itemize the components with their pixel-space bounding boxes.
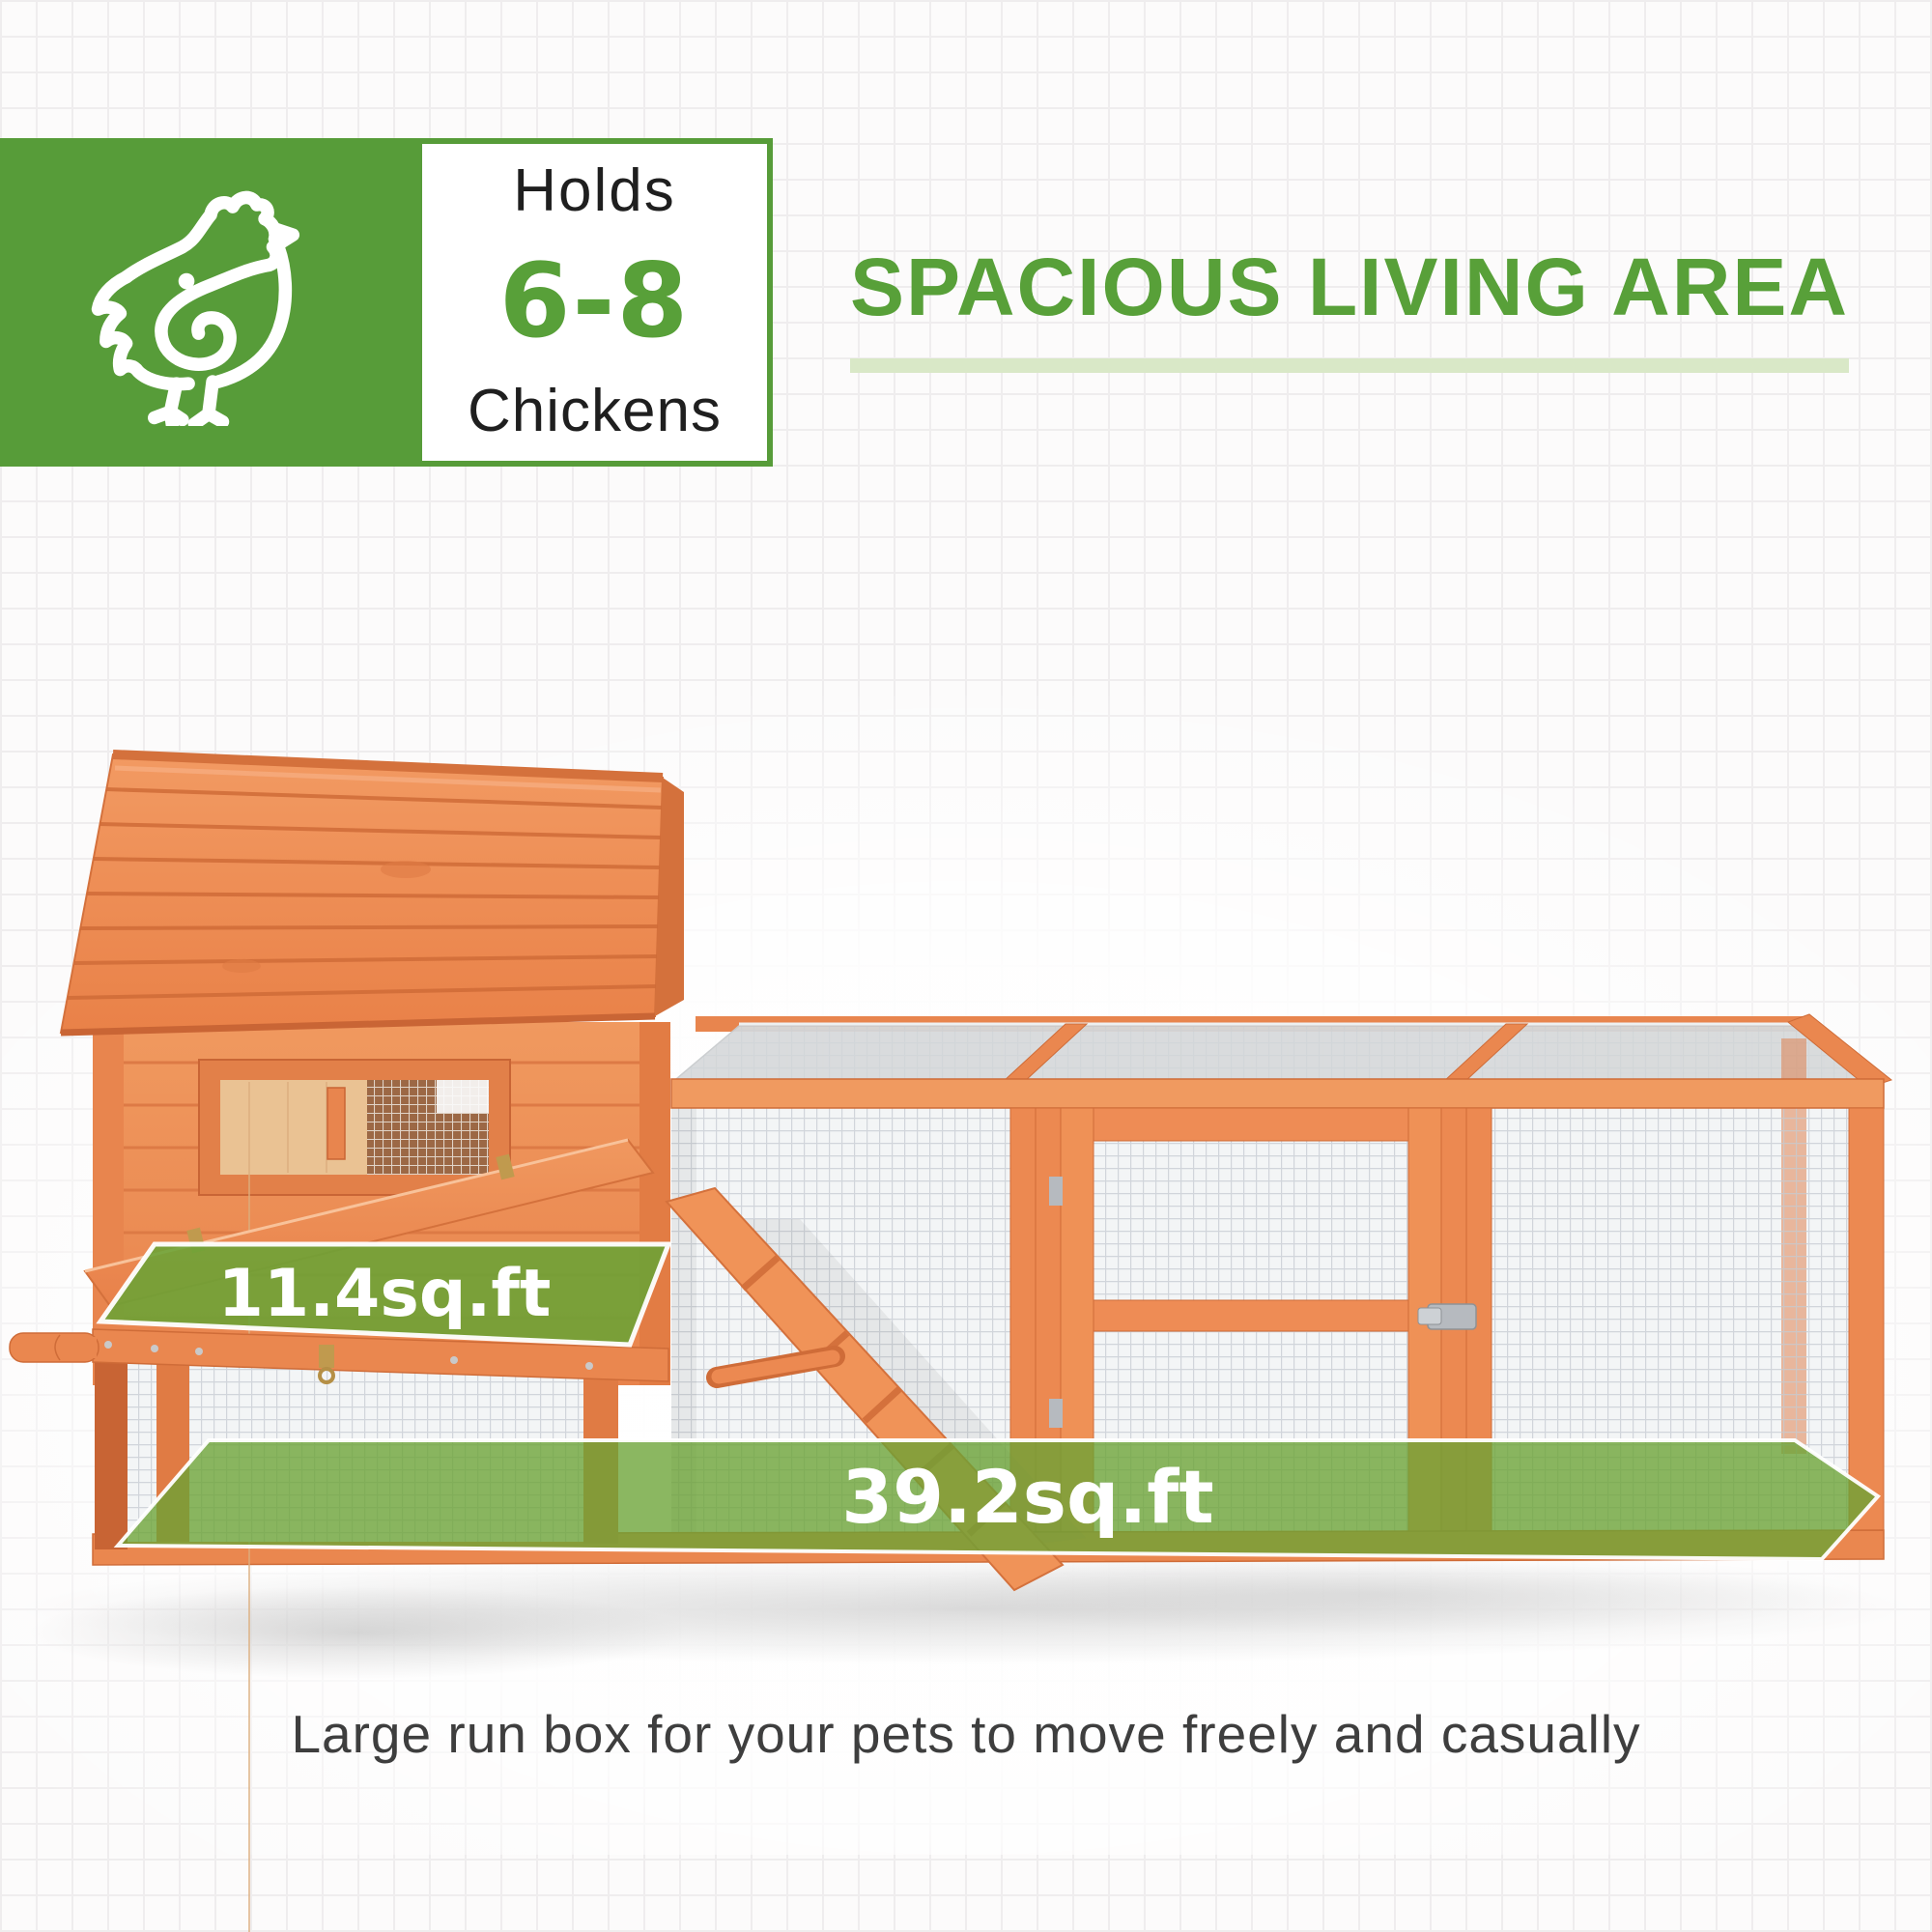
tray-handle [10,1333,99,1362]
door-hinge-icon [1049,1399,1063,1428]
chickens-label: Chickens [468,382,722,441]
door-top-rail [1094,1108,1408,1141]
capacity-panel: Holds 6-8 Chickens [422,144,767,461]
product-infographic: 39.2sq.ft 11.4sq.ft Holds [0,0,1932,1932]
caption-text: Large run box for your pets to move free… [0,1702,1932,1766]
door-mid-rail [1094,1300,1408,1331]
headline-underline [850,358,1849,373]
window-handle [327,1088,345,1159]
run-area-overlay: 39.2sq.ft [118,1440,1878,1559]
nesting-area-label: 11.4sq.ft [218,1256,552,1332]
ground-shadow [19,1552,1913,1679]
capacity-badge: Holds 6-8 Chickens [0,138,773,467]
headline: SPACIOUS LIVING AREA [850,246,1903,373]
run-roof-panels [676,1024,1880,1082]
corner-trim [639,1022,670,1385]
window-light [437,1080,489,1113]
capacity-value: 6-8 [499,250,691,353]
chicken-icon [60,185,311,426]
house-roof [61,754,684,1033]
page-title: SPACIOUS LIVING AREA [850,246,1903,327]
run-top-rail [671,1079,1884,1108]
holds-label: Holds [513,161,676,221]
house-leg [95,1354,128,1549]
run-area-label: 39.2sq.ft [841,1454,1213,1540]
door-hinge-icon [1049,1177,1063,1206]
